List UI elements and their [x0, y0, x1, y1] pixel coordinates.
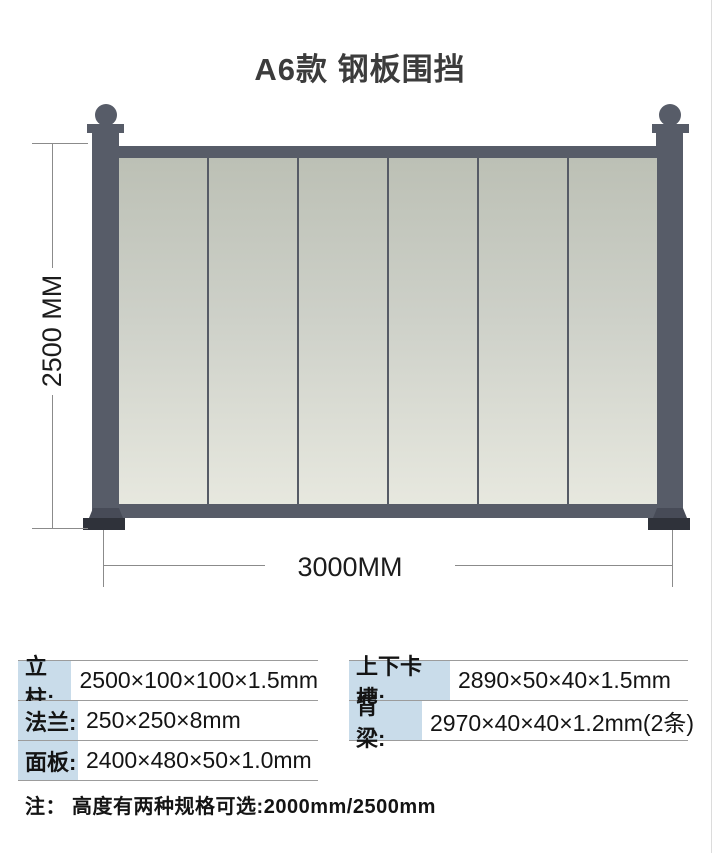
spec-table-right: 上下卡槽: 2890×50×40×1.5mm 背 梁: 2970×40×40×1…: [349, 660, 688, 741]
table-row: 立柱: 2500×100×100×1.5mm: [18, 661, 318, 701]
fence-top-rail: [110, 146, 658, 158]
fence-panel: [207, 158, 297, 504]
fence-panel: [477, 158, 567, 504]
fence-bottom-rail: [92, 504, 683, 518]
height-dim-extension-top: [32, 143, 88, 144]
height-dim-label: 2500 MM: [37, 181, 67, 481]
flange-base-right: [648, 518, 690, 530]
flange-base-left: [83, 518, 125, 530]
table-row: 面板: 2400×480×50×1.0mm: [18, 741, 318, 781]
page-title: A6款 钢板围挡: [0, 44, 720, 89]
post-cap-right: [652, 124, 689, 133]
spec-value-lizhu: 2500×100×100×1.5mm: [71, 667, 318, 694]
spec-label-lizhu: 立柱:: [18, 661, 71, 700]
spec-label-beiliang: 背 梁:: [349, 701, 422, 740]
fence-post-left: [92, 133, 119, 517]
width-dim-extension-right: [672, 530, 673, 587]
spec-table-left: 立柱: 2500×100×100×1.5mm 法兰: 250×250×8mm 面…: [18, 660, 318, 781]
post-ball-left: [95, 104, 117, 126]
width-dim-line-right: [455, 565, 673, 566]
height-dim-extension-bottom: [32, 528, 88, 529]
spec-value-falan: 250×250×8mm: [78, 707, 241, 734]
post-cap-left: [87, 124, 124, 133]
footnote: 注： 高度有两种规格可选:2000mm/2500mm: [25, 790, 436, 819]
fence-panel: [567, 158, 657, 504]
spec-label-falan: 法兰:: [18, 701, 78, 740]
fence-panel: [119, 158, 207, 504]
spec-value-kacao: 2890×50×40×1.5mm: [450, 667, 671, 694]
width-dim-line-left: [103, 565, 265, 566]
post-ball-right: [659, 104, 681, 126]
post-collar-left: [89, 508, 123, 518]
table-row: 法兰: 250×250×8mm: [18, 701, 318, 741]
fence-panel: [387, 158, 477, 504]
fence-post-right: [656, 133, 683, 517]
fence-panel: [297, 158, 387, 504]
width-dim-label: 3000MM: [260, 552, 440, 583]
page-border-right: [711, 0, 712, 853]
table-row: 背 梁: 2970×40×40×1.2mm(2条): [349, 701, 688, 741]
spec-value-mianban: 2400×480×50×1.0mm: [78, 747, 312, 774]
spec-value-beiliang: 2970×40×40×1.2mm(2条): [422, 704, 694, 738]
spec-label-mianban: 面板:: [18, 741, 78, 780]
width-dim-extension-left: [103, 530, 104, 587]
post-collar-right: [653, 508, 687, 518]
product-spec-sheet: A6款 钢板围挡 2500 MM: [0, 0, 720, 853]
fence-panel-area: [119, 158, 657, 504]
